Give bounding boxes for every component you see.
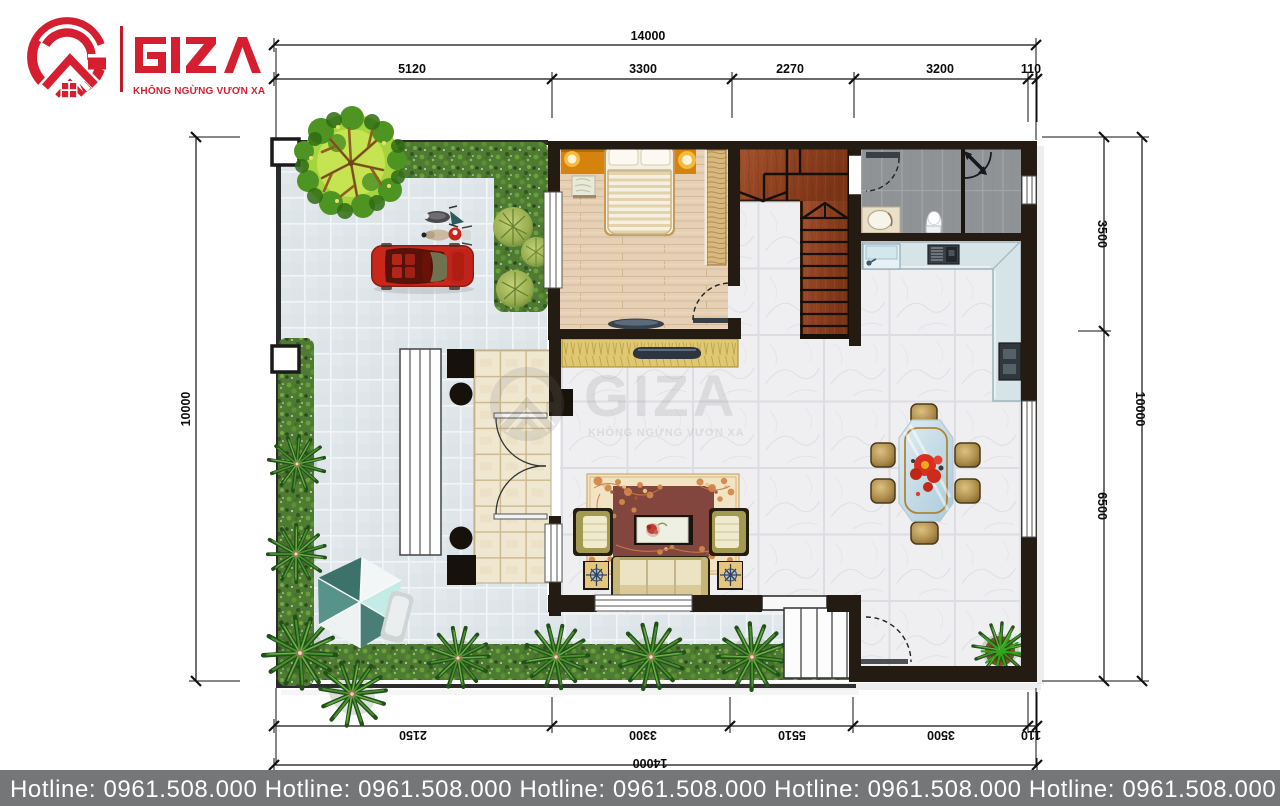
svg-text:3500: 3500 xyxy=(927,728,955,742)
svg-text:14000: 14000 xyxy=(633,756,668,770)
svg-text:GIZA: GIZA xyxy=(584,364,739,429)
svg-text:5120: 5120 xyxy=(398,62,426,76)
svg-text:3500: 3500 xyxy=(1095,220,1109,248)
svg-text:5510: 5510 xyxy=(778,728,806,742)
svg-text:2270: 2270 xyxy=(776,62,804,76)
svg-text:2150: 2150 xyxy=(399,728,427,742)
svg-text:10000: 10000 xyxy=(1133,392,1147,427)
svg-text:10000: 10000 xyxy=(179,392,193,427)
svg-text:3300: 3300 xyxy=(629,728,657,742)
svg-text:3200: 3200 xyxy=(926,62,954,76)
svg-text:6500: 6500 xyxy=(1095,492,1109,520)
svg-text:KHÔNG NGỪNG VƯƠN XA: KHÔNG NGỪNG VƯƠN XA xyxy=(133,84,265,97)
svg-text:KHÔNG NGỪNG VƯƠN XA: KHÔNG NGỪNG VƯƠN XA xyxy=(588,426,745,439)
svg-text:3300: 3300 xyxy=(629,62,657,76)
svg-text:14000: 14000 xyxy=(631,29,666,43)
svg-text:110: 110 xyxy=(1021,728,1041,742)
svg-text:Hotline: 0961.508.000 Hotline:: Hotline: 0961.508.000 Hotline: 0961.508.… xyxy=(10,776,1276,803)
svg-text:110: 110 xyxy=(1021,62,1041,76)
